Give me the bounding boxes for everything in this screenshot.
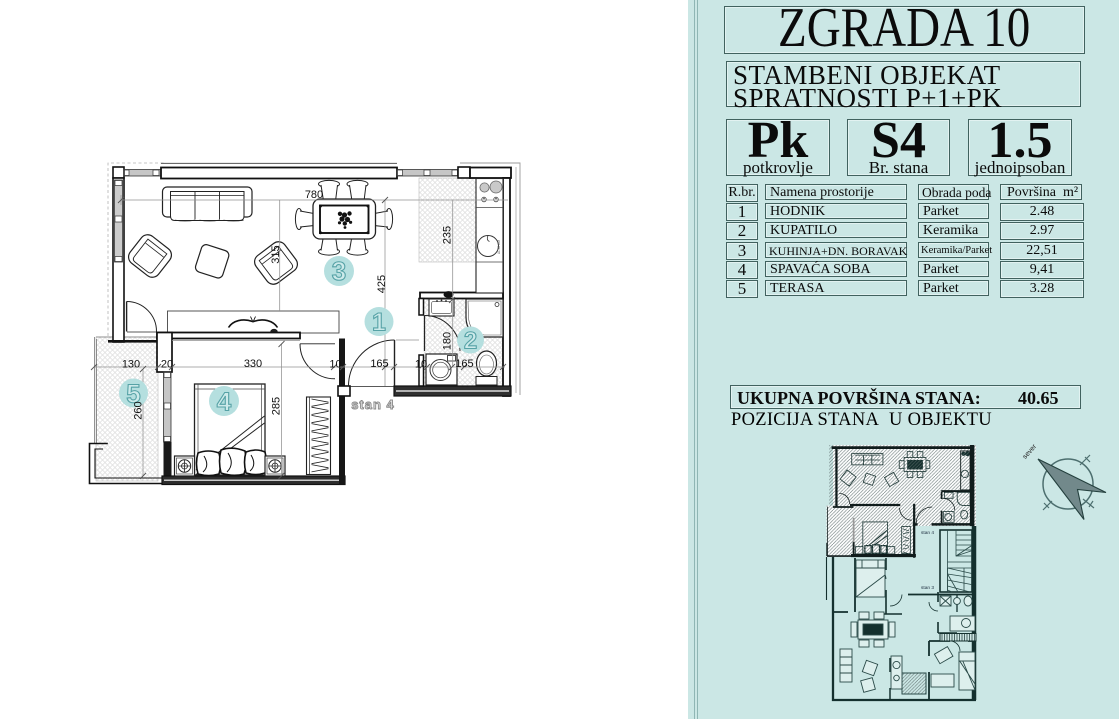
svg-text:20: 20 xyxy=(161,358,173,370)
svg-text:2: 2 xyxy=(464,328,477,355)
svg-text:stan 3: stan 3 xyxy=(921,585,934,591)
svg-text:780: 780 xyxy=(305,189,323,201)
svg-text:180: 180 xyxy=(442,332,454,350)
svg-text:315: 315 xyxy=(270,245,282,263)
svg-text:1: 1 xyxy=(372,309,386,337)
svg-text:stan 4: stan 4 xyxy=(351,397,395,412)
svg-text:10: 10 xyxy=(329,358,341,370)
svg-text:165: 165 xyxy=(455,358,473,370)
svg-text:165: 165 xyxy=(370,358,388,370)
svg-text:stan 4: stan 4 xyxy=(921,530,934,536)
svg-text:AL 85 CM: AL 85 CM xyxy=(497,240,501,254)
svg-text:4: 4 xyxy=(217,387,232,417)
svg-text:235: 235 xyxy=(442,226,454,244)
svg-text:10: 10 xyxy=(415,358,427,370)
svg-text:130: 130 xyxy=(122,358,140,370)
svg-text:3: 3 xyxy=(332,256,346,286)
svg-text:285: 285 xyxy=(270,397,282,415)
svg-text:sever: sever xyxy=(1022,443,1039,461)
svg-text:330: 330 xyxy=(244,358,262,370)
svg-text:260: 260 xyxy=(133,401,145,419)
svg-text:425: 425 xyxy=(376,275,388,293)
